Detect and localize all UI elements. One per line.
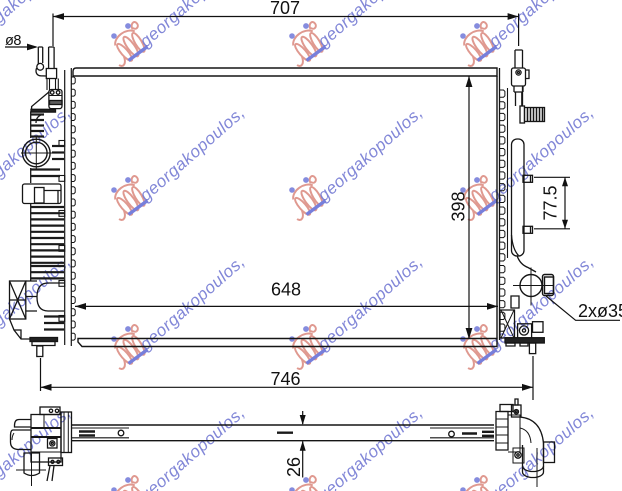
svg-text:2xø35: 2xø35 bbox=[578, 301, 622, 321]
svg-text:77.5: 77.5 bbox=[541, 185, 561, 220]
svg-text:ø8: ø8 bbox=[5, 33, 21, 49]
svg-text:398: 398 bbox=[449, 191, 469, 221]
svg-text:707: 707 bbox=[270, 0, 300, 18]
svg-text:648: 648 bbox=[271, 280, 301, 300]
svg-text:746: 746 bbox=[270, 369, 300, 389]
svg-text:26: 26 bbox=[284, 457, 304, 477]
